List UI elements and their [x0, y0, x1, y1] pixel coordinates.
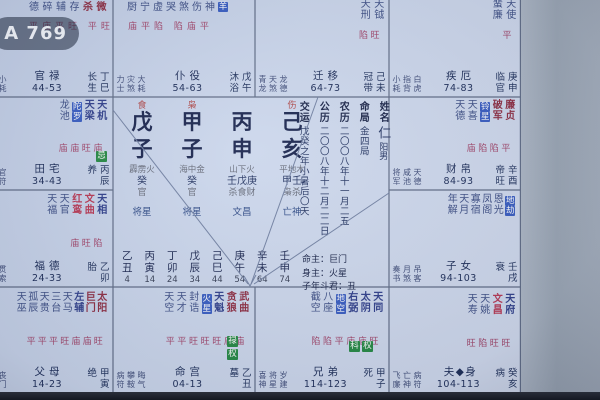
decade-luck-row[interactable]: 乙丑4丙寅14丁卯24戊辰34己巳44庚午54辛未64壬申74	[116, 251, 296, 286]
char: 生	[87, 84, 98, 95]
star-八座: 八座	[323, 293, 335, 315]
brightness-row: 平平平旺庙庙旺	[0, 334, 113, 347]
star-char: 气	[137, 381, 146, 390]
minor-star-攀鞍: 攀鞍	[127, 372, 136, 390]
star-左辅: 左辅	[74, 293, 86, 314]
star-char: 巫	[16, 304, 28, 315]
info-value-secondary: 阳男	[376, 142, 389, 160]
sihua-chips: 科权	[349, 341, 373, 352]
sihua-chip-权: 权	[362, 341, 373, 352]
pillar-branches: 子子申亥	[117, 136, 317, 162]
star-char: 座	[323, 304, 335, 315]
star-char: 阴	[360, 304, 372, 315]
star-char: 宁	[140, 2, 150, 14]
hidden-stem-gods: 官	[167, 188, 217, 199]
char: 己	[376, 73, 387, 84]
star-char: 天	[39, 293, 51, 304]
minor-stars: 小耗	[0, 76, 7, 94]
dayun-stem: 壬	[274, 251, 297, 263]
palace-cell-fuqi-shen[interactable]: 天寿天姚文昌天府 旺陷旺旺 飞廉亡神病符 夫◆身 104-113 病 癸亥	[389, 287, 521, 393]
star-char: 天	[176, 293, 188, 304]
dayun-column-壬申[interactable]: 壬申74	[274, 251, 297, 286]
star-fragments: 天刑天钺	[360, 0, 385, 21]
star-char: 空	[336, 304, 346, 314]
palace-cell-xiongdi[interactable]: 截空八座地空右弼太阴天同 陷陷平庙庙旺 科权 喜神将星岁建 兄弟 114-123…	[255, 287, 389, 393]
palace-name: 父母	[14, 364, 84, 379]
star-char: 宿	[470, 206, 482, 217]
palace-name: 田宅	[14, 161, 84, 176]
ganzhi: 丁巳	[100, 73, 111, 94]
star-char: 鸾	[72, 206, 84, 217]
info-label: 农历	[335, 101, 350, 123]
star-char: 索	[0, 275, 7, 284]
char: 胎	[87, 263, 98, 274]
brightness-row: 平	[502, 28, 514, 41]
star-char: 微	[97, 2, 107, 14]
nayin-row: 霹雳火海中金山下火平地木	[117, 163, 317, 175]
info-label: 姓名	[375, 101, 390, 123]
brightness-row: 旺陷旺旺	[389, 336, 521, 349]
palace-cell-caibo[interactable]: 天德天喜铃星破军廉贞 庙陷陷平 将军咸池天德 财帛 84-93 帝旺 辛酉	[389, 97, 521, 190]
minor-star-病符: 病符	[116, 372, 125, 390]
star-天使: 天使	[506, 0, 518, 21]
dayun-column-庚午[interactable]: 庚午54	[229, 251, 252, 286]
star-char: 神	[258, 381, 267, 390]
star-char: 贪	[226, 293, 238, 304]
star-char: 天	[47, 195, 59, 206]
minor-star-岁建: 岁建	[279, 372, 288, 390]
char: 戊	[242, 73, 253, 84]
palace-cell-zinv[interactable]: 年解天月寡宿凤阁恩光地劫 奏书月煞吊客 子女 94-103 衰 壬戌	[389, 190, 521, 287]
star-char: 天	[360, 0, 372, 11]
star-char: 陀	[72, 102, 82, 112]
dayun-branch: 寅	[139, 263, 162, 275]
dayun-age: 34	[184, 274, 207, 286]
dayun-stem: 己	[206, 251, 229, 263]
palace-cell-qianyi[interactable]: 天刑天钺 陷旺 青龙天煞龙德 迁移 64-73 冠带 己未	[255, 0, 389, 97]
ganzhi: 己未	[376, 73, 387, 94]
palace-cell-fude[interactable]: 天福天官红鸾文曲天相 庙旺陷 贯索 福德 24-33 胎 乙卯	[0, 190, 113, 287]
star-char: 台	[51, 304, 63, 315]
star-char: 官	[59, 206, 71, 217]
star-char: 客	[413, 275, 422, 284]
char: 戌	[508, 274, 519, 285]
pillar-stems: 戊甲丙己	[117, 109, 317, 135]
minor-star-飞廉: 飞廉	[392, 372, 401, 390]
dayun-column-辛未[interactable]: 辛未64	[251, 251, 274, 286]
star-天德: 天德	[455, 101, 467, 123]
star-三台: 三台	[51, 293, 63, 314]
star-char: 钺	[374, 11, 386, 22]
char: 子	[376, 380, 387, 391]
sihua-chip-权: 权	[227, 349, 238, 360]
minor-star-奏书: 奏书	[392, 266, 401, 284]
star-char: 天	[62, 293, 74, 304]
hidden-stem-gods: 杀食财	[217, 188, 267, 199]
star-char: 巨	[85, 293, 97, 304]
minor-stars: 病符攀鞍晦气	[116, 372, 146, 390]
minor-star-亡神: 亡神	[403, 372, 412, 390]
star-火星: 火星	[201, 293, 213, 315]
minor-star-龙德: 龙德	[279, 76, 288, 94]
cell-value: 丙	[217, 109, 267, 135]
char: 丙	[100, 166, 111, 177]
ganzhi: 壬戌	[508, 263, 519, 284]
star-char: 梁	[84, 112, 96, 123]
badge-text: A 769	[4, 23, 67, 44]
star-char: 天	[505, 295, 517, 306]
dayun-branch: 卯	[161, 263, 184, 275]
star-char: 辅	[74, 304, 86, 315]
star-char: 蜚	[492, 0, 504, 11]
star-char: 机	[97, 112, 109, 123]
star-贪狼: 贪狼	[226, 293, 238, 315]
star-寡宿: 寡宿	[470, 195, 482, 217]
star-char: 弼	[348, 304, 360, 315]
birth-info-columns: 交运戊癸之年小暑后〇天公历二〇〇八年十二月二二日农历二〇〇八年十一月二五命局金四…	[294, 101, 392, 251]
star-char: 贵	[39, 304, 51, 315]
star-天钺: 天钺	[374, 0, 386, 21]
chart-masters: 命主：巨门 身主：火星 子年斗君：丑	[302, 254, 356, 295]
star-天空: 天空	[164, 293, 176, 315]
dayun-branch: 巳	[206, 263, 229, 275]
star-右弼: 右弼	[348, 293, 360, 315]
ziwei-chart: 德碎辅存杀微 平庙平旺 平旺 小耗 官禄 44-53 长生 丁巳 厨宁虚哭煞伤神…	[0, 0, 521, 393]
info-column-农历: 农历二〇〇八年十一月二五	[334, 101, 352, 251]
hidden-stem-chars: 壬戊庚	[217, 176, 267, 188]
dayun-column-己巳[interactable]: 己巳44	[206, 251, 229, 286]
star-char: 截	[310, 293, 322, 304]
palace-name: 官禄	[14, 68, 84, 83]
stars: 天福天官红鸾文曲天相	[0, 195, 113, 216]
char: 旺	[495, 177, 506, 188]
palace-cell-fumu[interactable]: 天巫孤辰天贵三台天马左辅巨门太阳 平平平旺庙庙旺 丧门 父母 14-23 绝 甲…	[0, 287, 113, 393]
star-char: 地	[336, 294, 346, 304]
char: 酉	[508, 177, 519, 188]
cell-value: 戊	[117, 109, 167, 135]
char: 巳	[100, 84, 111, 95]
star-char: 诰	[189, 304, 201, 315]
star-char: 碎	[43, 2, 53, 14]
minor-star-吊客: 吊客	[413, 266, 422, 284]
star-char: 门	[85, 304, 97, 315]
palace-name: 仆役	[153, 68, 226, 83]
life-stage: 绝	[87, 369, 98, 390]
minor-stars: 力士灾煞大耗	[116, 76, 146, 94]
ganzhi: 甲子	[376, 369, 387, 390]
dayun-age: 24	[161, 274, 184, 286]
star-char: 刑	[360, 11, 372, 22]
star-龙池: 龙池	[59, 101, 71, 123]
life-stage: 病	[495, 369, 506, 390]
palace-name: 夫◆身	[429, 364, 492, 379]
stars: 天寿天姚文昌天府	[389, 295, 521, 316]
dayun-column-乙丑[interactable]: 乙丑4	[116, 251, 139, 286]
star-char: 耗	[137, 85, 146, 94]
char: 浴	[229, 84, 240, 95]
star-凤阁: 凤阁	[482, 195, 494, 217]
star-char: 虚	[153, 2, 163, 14]
minor-star-小耗: 小耗	[392, 76, 401, 94]
star-char: 门	[0, 381, 7, 390]
star-char: 三	[51, 293, 63, 304]
dayun-branch: 午	[229, 263, 252, 275]
star-char: 符	[0, 178, 7, 187]
minor-stars: 奏书月煞吊客	[392, 266, 422, 284]
minor-star-天煞: 天煞	[269, 76, 278, 94]
sihua-chips: 禄权	[227, 336, 238, 360]
dayun-age: 44	[206, 274, 229, 286]
star-char: 池	[403, 178, 412, 187]
star-天府: 天府	[505, 295, 517, 316]
palace-cell-jie[interactable]: 蜚廉天使 平 小耗指背白虎 疾厄 74-83 临官 庚申	[389, 0, 521, 97]
star-char: 伤	[192, 2, 202, 14]
cell-value: 子	[117, 136, 167, 162]
decade-range: 24-33	[10, 273, 84, 284]
cell-value: 文昌	[217, 204, 267, 218]
char: 申	[508, 84, 519, 95]
star-char: 天	[97, 101, 109, 112]
minor-stars: 飞廉亡神病符	[392, 372, 422, 390]
star-char: 符	[413, 381, 422, 390]
char: 辛	[508, 166, 519, 177]
ganzhi: 甲寅	[100, 369, 111, 390]
stars: 截空八座地空右弼太阴天同	[255, 293, 389, 315]
star-char: 建	[279, 381, 288, 390]
star-char: 星	[202, 304, 212, 314]
star-char: 士	[116, 85, 125, 94]
star-char: 天	[480, 295, 492, 306]
star-char: 神	[403, 381, 412, 390]
minor-star-力士: 力士	[116, 76, 125, 94]
minor-star-月煞: 月煞	[403, 266, 412, 284]
star-封诰: 封诰	[189, 293, 201, 315]
star-fragments: 厨宁虚哭煞伤神羊	[127, 2, 228, 14]
dayun-stem: 辛	[251, 251, 274, 263]
star-char: 贞	[505, 112, 517, 123]
stars: 天空天才封诰火星天魁贪狼武曲	[113, 293, 255, 315]
star-文曲: 文曲	[84, 195, 96, 216]
hidden-stem: 壬戊庚杀食财	[217, 176, 267, 199]
char: 乙	[100, 263, 111, 274]
hidden-stem-chars: 癸	[117, 176, 167, 188]
minor-star-咸池: 咸池	[403, 169, 412, 187]
star-char: 太	[97, 293, 109, 304]
star-char: 使	[506, 11, 518, 22]
decade-range: 94-103	[425, 273, 492, 284]
stars: 天德天喜铃星破军廉贞	[389, 101, 521, 123]
star-天喜: 天喜	[467, 101, 479, 123]
star-char: 喜	[467, 112, 479, 123]
char: 寅	[100, 380, 111, 391]
dayun-column-戊辰[interactable]: 戊辰34	[184, 251, 207, 286]
dayun-stem: 戊	[184, 251, 207, 263]
life-stage: 冠带	[363, 73, 374, 94]
star-太阳: 太阳	[97, 293, 109, 314]
char: 庚	[508, 73, 519, 84]
dayun-column-丙寅[interactable]: 丙寅14	[139, 251, 162, 286]
minor-star-白虎: 白虎	[413, 76, 422, 94]
star-fragments: 蜚廉天使	[492, 0, 517, 21]
center-info-panel: 食枭伤 戊甲丙己 子子申亥 霹雳火海中金山下火平地木 癸官癸官壬戊庚杀食财甲壬枭…	[113, 97, 389, 287]
palace-cell-minggong[interactable]: 天空天才封诰火星天魁贪狼武曲 平平旺旺旺庙庙 禄权 病符攀鞍晦气 命宫 04-1…	[113, 287, 255, 393]
star-截空: 截空	[310, 293, 322, 315]
palace-name: 命宫	[153, 364, 226, 379]
star-char: 军	[392, 178, 401, 187]
info-value: 金四局	[356, 126, 370, 156]
dayun-stem: 丙	[139, 251, 162, 263]
char: 辰	[100, 177, 111, 188]
palace-cell-puyi[interactable]: 厨宁虚哭煞伤神羊 庙平陷 陷庙平 力士灾煞大耗 仆役 54-63 沐浴 戊午	[113, 0, 255, 97]
star-char: 天	[59, 195, 71, 206]
char: 墓	[229, 369, 240, 380]
dayun-column-丁卯[interactable]: 丁卯24	[161, 251, 184, 286]
ganzhi: 庚申	[508, 73, 519, 94]
brightness-row: 庙陷陷平	[389, 141, 521, 154]
life-master: 命主：巨门	[302, 254, 356, 268]
star-char: 耗	[0, 85, 7, 94]
star-陀罗: 陀罗	[72, 101, 84, 123]
hidden-stem: 癸官	[167, 176, 217, 199]
cell-value: 将星	[117, 204, 167, 218]
life-stage: 胎	[87, 263, 98, 284]
screen-photo: 德碎辅存杀微 平庙平旺 平旺 小耗 官禄 44-53 长生 丁巳 厨宁虚哭煞伤神…	[0, 0, 600, 400]
star-文昌: 文昌	[492, 295, 504, 316]
star-char: 罗	[72, 112, 82, 122]
star-char: 书	[392, 275, 401, 284]
decade-range: 54-63	[149, 83, 226, 94]
brightness-row: 庙旺陷	[0, 236, 113, 249]
minor-stars: 青龙天煞龙德	[258, 76, 288, 94]
star-char: 廉	[392, 381, 401, 390]
palace-name: 财帛	[429, 161, 492, 176]
decade-range: 74-83	[425, 83, 492, 94]
life-stage: 死	[363, 369, 374, 390]
char: 病	[495, 369, 506, 380]
video-overlay-badge: A 769	[0, 17, 79, 50]
star-廉贞: 廉贞	[505, 101, 517, 123]
star-天福: 天福	[47, 195, 59, 216]
char: 冠	[363, 73, 374, 84]
char: 带	[363, 84, 374, 95]
star-char: 同	[373, 304, 385, 315]
star-巨门: 巨门	[85, 293, 97, 314]
star-char: 天	[16, 293, 28, 304]
info-column-公历: 公历二〇〇八年十二月二二日	[314, 101, 332, 251]
star-char: 煞	[127, 85, 136, 94]
char: 死	[363, 369, 374, 380]
monitor-bezel	[0, 392, 600, 400]
cell-value: 霹雳火	[117, 163, 167, 175]
decade-range: 64-73	[291, 83, 360, 94]
star-char: 铃	[480, 102, 490, 112]
star-char: 军	[492, 112, 504, 123]
char: 卯	[100, 274, 111, 285]
star-char: 恩	[493, 195, 505, 206]
star-char: 杀	[83, 2, 93, 14]
life-stage: 长生	[87, 73, 98, 94]
star-char: 阳	[97, 304, 109, 315]
star-天同: 天同	[373, 293, 385, 315]
star-天魁: 天魁	[214, 293, 226, 315]
dayun-branch: 申	[274, 263, 297, 275]
star-char: 光	[493, 206, 505, 217]
info-label: 交运	[295, 101, 310, 123]
star-天马: 天马	[62, 293, 74, 314]
star-铃星: 铃星	[480, 101, 492, 123]
char: 衰	[495, 263, 506, 274]
char: 丁	[100, 73, 111, 84]
stars: 龙池陀罗天梁天机	[0, 101, 113, 123]
hidden-stem: 癸官	[117, 176, 167, 199]
star-char: 煞	[403, 275, 412, 284]
palace-name: 子女	[429, 258, 492, 273]
char: 沐	[229, 73, 240, 84]
char: 壬	[508, 263, 519, 274]
star-char: 文	[84, 195, 96, 206]
star-char: 天	[97, 195, 109, 206]
star-char: 天	[467, 295, 479, 306]
dayun-branch: 未	[251, 263, 274, 275]
star-char: 煞	[269, 85, 278, 94]
star-char: 凤	[482, 195, 494, 206]
minor-star-大耗: 大耗	[137, 76, 146, 94]
star-char: 龙	[59, 101, 71, 112]
star-char: 月	[459, 206, 471, 217]
star-武曲: 武曲	[239, 293, 251, 315]
decade-range: 84-93	[425, 176, 492, 187]
star-fragments: 德碎辅存杀微	[29, 2, 107, 14]
star-恩光: 恩光	[493, 195, 505, 217]
char: 养	[87, 166, 98, 177]
star-char: 符	[116, 381, 125, 390]
star-char: 煞	[179, 2, 189, 14]
star-char: 厨	[127, 2, 137, 14]
ganzhi: 丙辰	[100, 166, 111, 187]
star-char: 寡	[470, 195, 482, 206]
star-char: 廉	[492, 11, 504, 22]
info-column-命局: 命局金四局	[354, 101, 372, 251]
dayun-branch: 丑	[116, 263, 139, 275]
star-天梁: 天梁	[84, 101, 96, 123]
life-stage: 墓	[229, 369, 240, 390]
star-char: 天	[506, 0, 518, 11]
cell-value: 申	[217, 136, 267, 162]
palace-cell-tianzhai[interactable]: 龙池陀罗天梁天机 庙庙旺庙 忌 官符 田宅 34-43 养 丙辰	[0, 97, 113, 190]
shensha-row: 将星将星文昌亡神	[117, 204, 317, 218]
star-char: 红	[72, 195, 84, 206]
info-label: 公历	[315, 101, 330, 123]
char: 丑	[242, 380, 253, 391]
star-地劫: 地劫	[505, 195, 517, 217]
decade-range: 44-53	[10, 83, 84, 94]
char: 甲	[376, 369, 387, 380]
cell-value: 海中金	[167, 163, 217, 175]
star-char: 才	[176, 304, 188, 315]
life-stage: 衰	[495, 263, 506, 284]
minor-star-将星: 将星	[269, 372, 278, 390]
star-char: 空	[310, 304, 322, 315]
star-char: 天	[164, 293, 176, 304]
hidden-stem-gods: 官	[117, 188, 167, 199]
cell-value: 将星	[167, 204, 217, 218]
star-天刑: 天刑	[360, 0, 372, 21]
dayun-stem: 乙	[116, 251, 139, 263]
ganzhi: 乙丑	[242, 369, 253, 390]
decade-range: 114-123	[291, 379, 360, 390]
info-column-姓名: 姓名仁阳男	[374, 101, 392, 251]
char: 午	[242, 84, 253, 95]
